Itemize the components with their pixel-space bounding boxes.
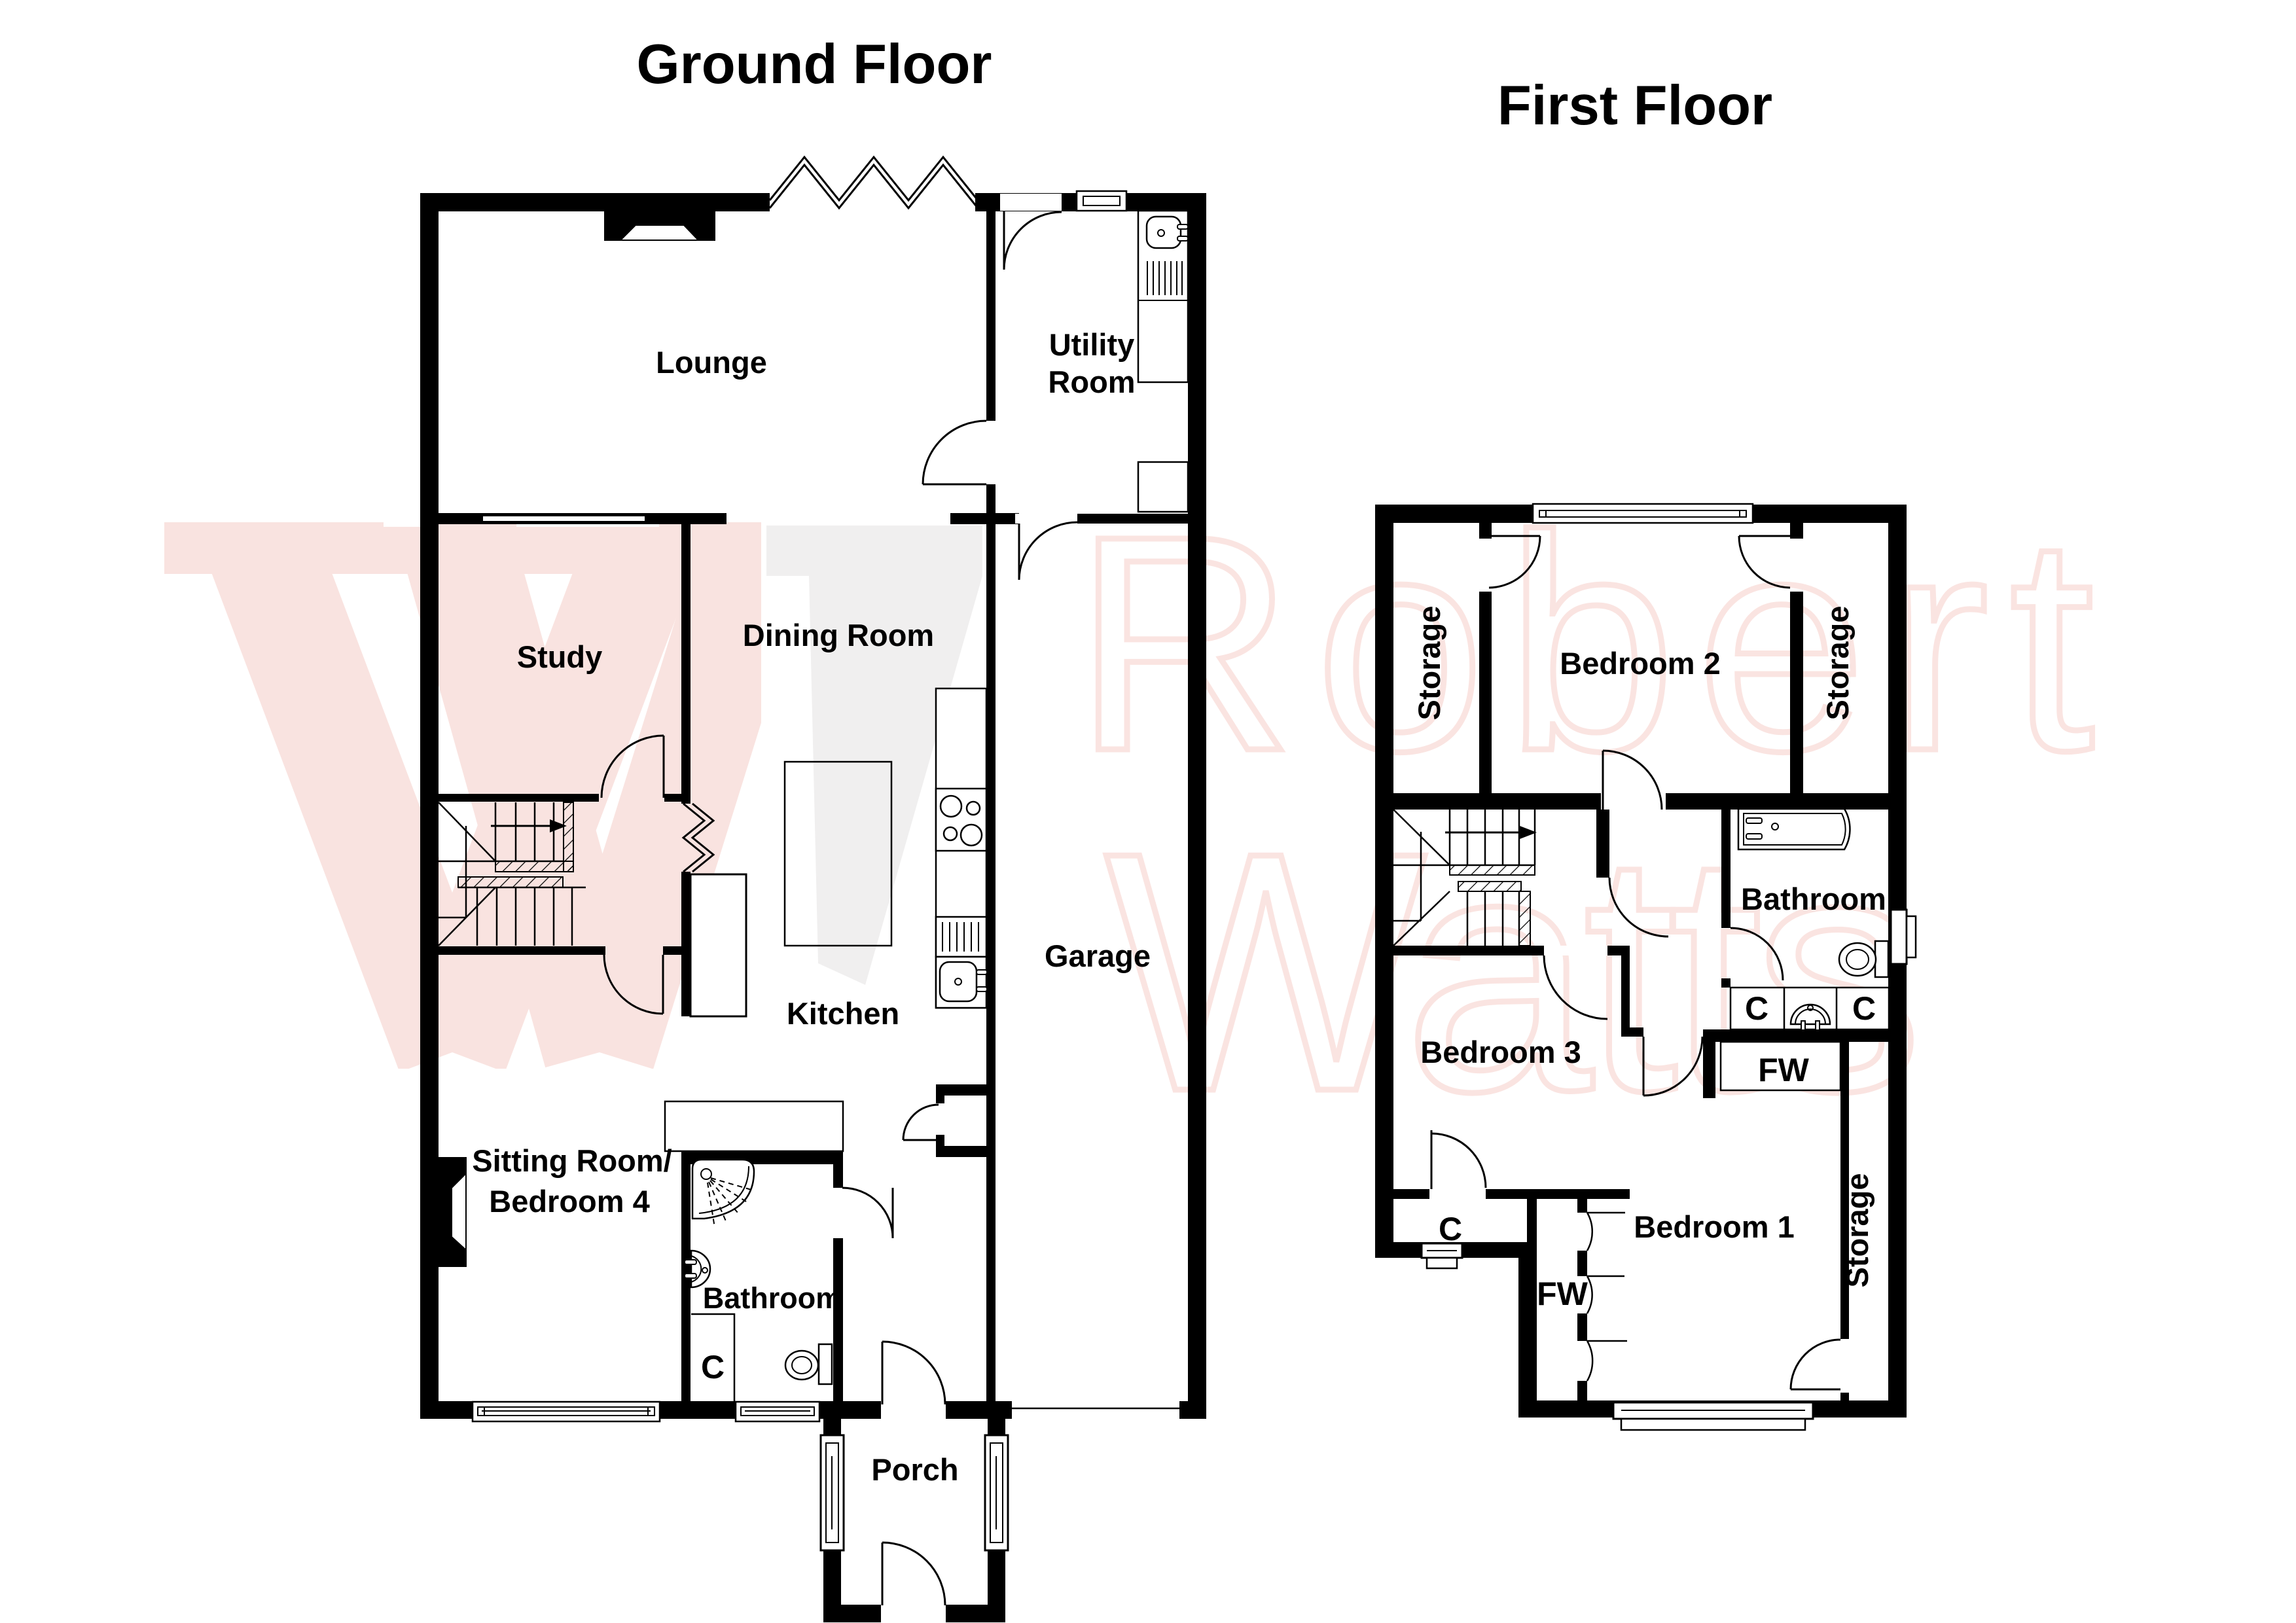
svg-text:Bedroom 4: Bedroom 4 xyxy=(489,1184,650,1219)
svg-text:Bathroom: Bathroom xyxy=(703,1281,842,1315)
svg-text:Utility: Utility xyxy=(1049,327,1135,362)
svg-text:FW: FW xyxy=(1537,1275,1588,1312)
svg-text:Sitting Room/: Sitting Room/ xyxy=(472,1143,672,1178)
svg-text:C: C xyxy=(1439,1211,1462,1247)
svg-text:Garage: Garage xyxy=(1045,938,1151,973)
svg-text:Bedroom 1: Bedroom 1 xyxy=(1634,1209,1795,1244)
svg-text:Ground Floor: Ground Floor xyxy=(637,33,992,96)
svg-text:Robert: Robert xyxy=(1073,473,2096,815)
svg-text:Room: Room xyxy=(1048,365,1135,399)
svg-text:Bedroom 2: Bedroom 2 xyxy=(1560,646,1721,681)
svg-text:Porch: Porch xyxy=(871,1452,958,1487)
svg-text:C: C xyxy=(1852,990,1876,1027)
svg-text:Storage: Storage xyxy=(1820,606,1855,721)
svg-text:Dining Room: Dining Room xyxy=(743,618,934,652)
svg-text:Bathroom: Bathroom xyxy=(1741,882,1886,916)
svg-text:C: C xyxy=(1745,990,1768,1027)
svg-text:Kitchen: Kitchen xyxy=(787,996,899,1031)
svg-text:FW: FW xyxy=(1758,1052,1810,1088)
svg-text:First Floor: First Floor xyxy=(1498,75,1772,137)
svg-text:Bedroom 3: Bedroom 3 xyxy=(1420,1035,1581,1069)
svg-text:Storage: Storage xyxy=(1840,1173,1874,1288)
svg-text:Lounge: Lounge xyxy=(656,345,767,380)
svg-text:C: C xyxy=(701,1349,725,1385)
svg-text:Storage: Storage xyxy=(1412,606,1446,721)
svg-text:Study: Study xyxy=(517,639,603,674)
